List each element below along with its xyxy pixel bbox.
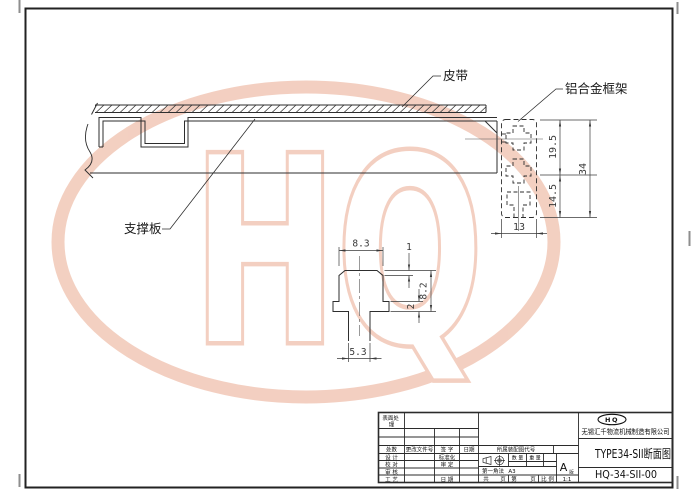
page-suffix: 页 [530, 476, 536, 483]
company-name: 无锡汇千物流机械制造有限公司 [582, 427, 670, 436]
drawing-sheet: HQ [0, 0, 700, 495]
first-angle-projection-icon [483, 455, 505, 466]
signoff-process: 工 艺 [385, 476, 398, 483]
signoff-standardization: 标准化 [439, 454, 456, 462]
revision-suffix: 版 [569, 469, 574, 476]
hq-watermark: HQ [58, 87, 554, 402]
hq-logo-text: HQ [605, 416, 619, 424]
signoff-date: 日 期 [441, 476, 454, 483]
drawing-number: HQ-34-SII-00 [595, 469, 657, 481]
drawing-title: TYPE34-SII断面图 [594, 446, 671, 461]
total-label: 共 [483, 475, 489, 483]
scale-label: 比 例 [541, 475, 554, 483]
assembly-code-label: 所属装配图代号 [497, 446, 536, 454]
header-change-doc: 更改文件号 [406, 446, 434, 454]
dim-34: 34 [578, 163, 589, 175]
dim-19-5: 19.5 [548, 135, 559, 159]
dim-13: 13 [513, 222, 525, 233]
belt-section [92, 103, 487, 115]
dim-1: 1 [406, 242, 412, 253]
label-aluminum-frame: 铝合金框架 [565, 81, 628, 96]
dim-5-3: 5.3 [349, 347, 366, 358]
projection-method-label: 第一角法 [482, 467, 505, 475]
scale-value: 1:1 [563, 477, 572, 483]
header-date: 日期 [463, 447, 475, 454]
quantity-label: 数 量 [512, 455, 524, 462]
cad-drawing-svg: HQ [0, 0, 700, 495]
title-block-text: 表面处 理 处数 更改文件号 签 字 日期 设 计 校 对 审 核 工 艺 标准… [382, 414, 671, 483]
label-support-plate: 支撑板 [124, 221, 162, 236]
signoff-check: 校 对 [385, 461, 398, 469]
sheet-format: A3 [508, 469, 516, 475]
signoff-design: 设 计 [385, 454, 398, 462]
header-signature: 签 字 [441, 446, 454, 454]
signoff-approve: 审 定 [441, 461, 454, 469]
label-belt: 皮带 [443, 68, 468, 83]
dim-14-5: 14.5 [548, 184, 559, 208]
page-label: 第 [511, 475, 517, 483]
weight-label: 重 量 [529, 455, 541, 462]
dim-2: 2 [406, 304, 417, 310]
profile-dimensions [491, 120, 597, 238]
dim-8-3: 8.3 [352, 239, 369, 250]
revision-letter: A [560, 461, 568, 474]
header-revision-count: 处数 [386, 446, 398, 454]
dim-8-2: 8.2 [419, 282, 430, 299]
total-suffix: 页 [500, 476, 506, 483]
watermark-text: HQ [193, 104, 483, 402]
svg-text:表面处 理: 表面处 理 [382, 414, 400, 429]
signoff-review: 审 核 [385, 468, 398, 476]
